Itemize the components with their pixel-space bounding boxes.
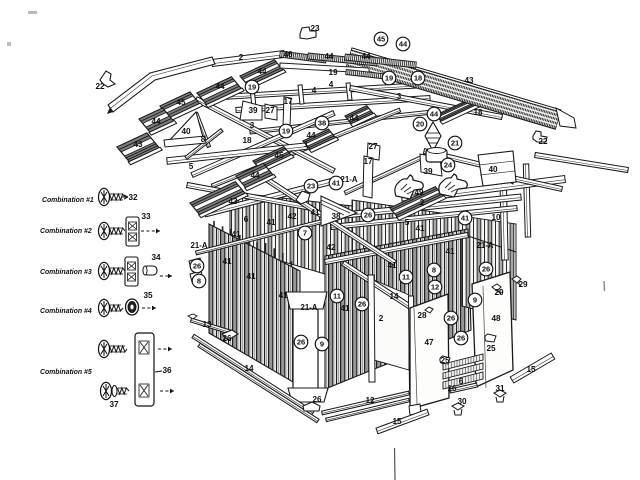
svg-text:40: 40 bbox=[181, 127, 191, 136]
svg-text:16: 16 bbox=[447, 384, 457, 393]
svg-text:21-A: 21-A bbox=[477, 241, 494, 250]
svg-text:24: 24 bbox=[444, 161, 453, 170]
svg-text:10: 10 bbox=[491, 213, 501, 222]
svg-text:4: 4 bbox=[312, 86, 317, 95]
svg-text:32: 32 bbox=[128, 193, 138, 202]
svg-text:7: 7 bbox=[303, 229, 307, 238]
svg-text:26: 26 bbox=[364, 211, 372, 220]
svg-text:36: 36 bbox=[162, 366, 172, 375]
svg-text:8: 8 bbox=[197, 277, 201, 286]
svg-text:42: 42 bbox=[287, 212, 297, 221]
svg-text:38: 38 bbox=[318, 119, 326, 128]
svg-text:41: 41 bbox=[246, 272, 256, 281]
svg-text:6: 6 bbox=[459, 377, 464, 386]
svg-text:19: 19 bbox=[385, 74, 393, 83]
svg-text:41: 41 bbox=[461, 214, 469, 223]
svg-text:23: 23 bbox=[310, 24, 320, 33]
svg-text:34: 34 bbox=[151, 253, 161, 262]
svg-text:41: 41 bbox=[415, 224, 425, 233]
svg-text:44: 44 bbox=[215, 82, 225, 91]
svg-text:19: 19 bbox=[328, 68, 338, 77]
svg-text:45: 45 bbox=[274, 151, 284, 160]
svg-text:37: 37 bbox=[109, 400, 119, 409]
svg-text:26: 26 bbox=[222, 334, 232, 343]
svg-text:4: 4 bbox=[329, 80, 334, 89]
svg-text:41: 41 bbox=[222, 257, 232, 266]
svg-text:22: 22 bbox=[538, 137, 548, 146]
svg-text:26: 26 bbox=[457, 334, 465, 343]
svg-text:49: 49 bbox=[414, 188, 424, 197]
svg-text:41: 41 bbox=[445, 247, 455, 256]
svg-text:18: 18 bbox=[414, 74, 422, 83]
svg-text:8: 8 bbox=[432, 266, 436, 275]
svg-text:26: 26 bbox=[312, 395, 322, 404]
svg-text:26: 26 bbox=[297, 338, 305, 347]
svg-text:26: 26 bbox=[482, 265, 490, 274]
svg-text:21: 21 bbox=[451, 139, 459, 148]
svg-text:48: 48 bbox=[491, 314, 501, 323]
svg-text:3: 3 bbox=[397, 92, 402, 101]
svg-text:17: 17 bbox=[283, 97, 293, 106]
svg-text:45: 45 bbox=[176, 98, 186, 107]
svg-text:47: 47 bbox=[424, 338, 434, 347]
svg-text:19: 19 bbox=[248, 83, 256, 92]
svg-text:5: 5 bbox=[189, 162, 194, 171]
svg-text:27: 27 bbox=[368, 142, 378, 151]
svg-text:42: 42 bbox=[326, 243, 336, 252]
svg-text:11: 11 bbox=[402, 273, 410, 282]
svg-text:44: 44 bbox=[349, 114, 359, 123]
svg-text:9: 9 bbox=[473, 296, 477, 305]
svg-text:44: 44 bbox=[306, 131, 316, 140]
svg-text:2: 2 bbox=[420, 198, 425, 207]
svg-text:6: 6 bbox=[244, 215, 249, 224]
svg-text:41: 41 bbox=[278, 291, 288, 300]
svg-text:14: 14 bbox=[389, 292, 399, 301]
svg-text:41: 41 bbox=[310, 208, 320, 217]
svg-text:5: 5 bbox=[405, 218, 410, 227]
svg-text:38: 38 bbox=[331, 212, 341, 221]
svg-text:44: 44 bbox=[257, 67, 267, 76]
svg-text:41: 41 bbox=[340, 304, 350, 313]
svg-text:29: 29 bbox=[518, 280, 528, 289]
svg-text:22: 22 bbox=[95, 82, 105, 91]
svg-text:41: 41 bbox=[387, 261, 397, 270]
svg-text:12: 12 bbox=[365, 396, 375, 405]
svg-text:44: 44 bbox=[361, 52, 371, 61]
svg-text:25: 25 bbox=[440, 356, 450, 365]
svg-text:11: 11 bbox=[333, 292, 341, 301]
svg-text:14: 14 bbox=[244, 364, 254, 373]
svg-text:28: 28 bbox=[417, 311, 427, 320]
svg-text:Combination #4: Combination #4 bbox=[40, 308, 92, 315]
svg-text:44: 44 bbox=[399, 40, 408, 49]
svg-text:33: 33 bbox=[141, 212, 151, 221]
svg-text:40: 40 bbox=[488, 165, 498, 174]
svg-text:21-A: 21-A bbox=[301, 303, 318, 312]
svg-text:12: 12 bbox=[431, 283, 439, 292]
svg-text:44: 44 bbox=[430, 110, 439, 119]
svg-text:2: 2 bbox=[379, 314, 384, 323]
svg-text:23: 23 bbox=[307, 182, 315, 191]
svg-text:27: 27 bbox=[265, 106, 275, 115]
svg-text:35: 35 bbox=[143, 291, 153, 300]
svg-text:41: 41 bbox=[231, 230, 241, 239]
svg-text:13: 13 bbox=[202, 320, 212, 329]
svg-text:Combination #5: Combination #5 bbox=[40, 369, 92, 376]
svg-text:Combination #2: Combination #2 bbox=[40, 228, 92, 235]
svg-text:26: 26 bbox=[193, 262, 201, 271]
svg-text:17: 17 bbox=[363, 157, 373, 166]
svg-text:18: 18 bbox=[242, 136, 252, 145]
svg-text:26: 26 bbox=[447, 314, 455, 323]
svg-text:31: 31 bbox=[495, 384, 505, 393]
svg-text:15: 15 bbox=[526, 365, 536, 374]
svg-text:Combination #3: Combination #3 bbox=[40, 269, 92, 276]
svg-text:26: 26 bbox=[358, 300, 366, 309]
svg-text:43: 43 bbox=[464, 76, 474, 85]
svg-text:18: 18 bbox=[473, 108, 483, 117]
svg-text:19: 19 bbox=[282, 127, 290, 136]
svg-text:15: 15 bbox=[392, 417, 402, 426]
svg-text:Combination #1: Combination #1 bbox=[42, 197, 94, 204]
svg-text:8: 8 bbox=[201, 135, 206, 144]
svg-text:3: 3 bbox=[250, 121, 255, 130]
svg-text:1: 1 bbox=[304, 140, 309, 149]
svg-text:20: 20 bbox=[416, 120, 424, 129]
svg-text:21-A: 21-A bbox=[191, 241, 208, 250]
svg-text:25: 25 bbox=[486, 344, 496, 353]
svg-text:46: 46 bbox=[283, 50, 293, 59]
svg-text:41: 41 bbox=[332, 179, 340, 188]
svg-text:39: 39 bbox=[248, 106, 258, 115]
svg-text:30: 30 bbox=[457, 397, 467, 406]
svg-text:2: 2 bbox=[239, 53, 244, 62]
svg-text:29: 29 bbox=[494, 288, 504, 297]
svg-text:44: 44 bbox=[250, 171, 260, 180]
svg-text:45: 45 bbox=[377, 35, 385, 44]
svg-text:44: 44 bbox=[151, 117, 161, 126]
svg-text:44: 44 bbox=[324, 52, 334, 61]
svg-text:41: 41 bbox=[266, 218, 276, 227]
svg-text:9: 9 bbox=[320, 340, 324, 349]
svg-text:39: 39 bbox=[423, 167, 433, 176]
svg-text:43: 43 bbox=[228, 197, 238, 206]
svg-text:43: 43 bbox=[133, 140, 143, 149]
